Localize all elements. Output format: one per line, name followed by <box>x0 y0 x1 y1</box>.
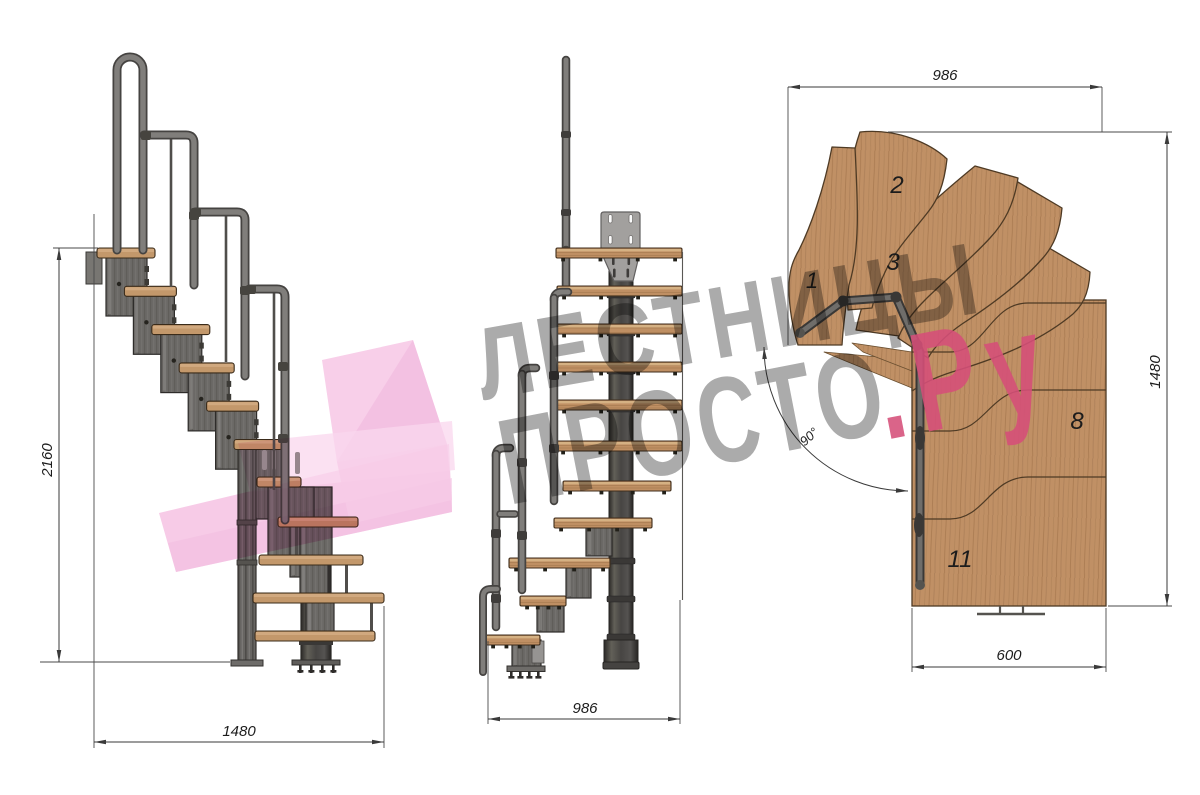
svg-text:986: 986 <box>932 67 958 84</box>
svg-text:986: 986 <box>572 700 598 717</box>
svg-text:600: 600 <box>996 647 1022 664</box>
svg-text:1480: 1480 <box>1147 355 1164 389</box>
svg-text:1480: 1480 <box>222 723 256 740</box>
svg-text:2: 2 <box>889 172 903 199</box>
svg-text:2160: 2160 <box>39 443 56 478</box>
svg-text:8: 8 <box>1070 408 1084 435</box>
svg-text:.Ру: .Ру <box>860 279 1067 469</box>
svg-text:11: 11 <box>948 546 973 573</box>
